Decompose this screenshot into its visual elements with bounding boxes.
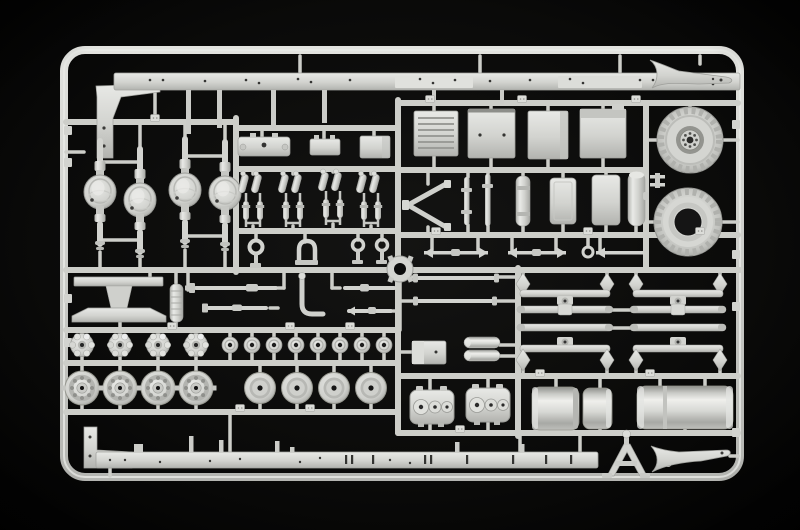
photo-stage: [0, 0, 800, 530]
sprue-photo: [0, 0, 800, 530]
vignette-overlay: [0, 0, 800, 530]
